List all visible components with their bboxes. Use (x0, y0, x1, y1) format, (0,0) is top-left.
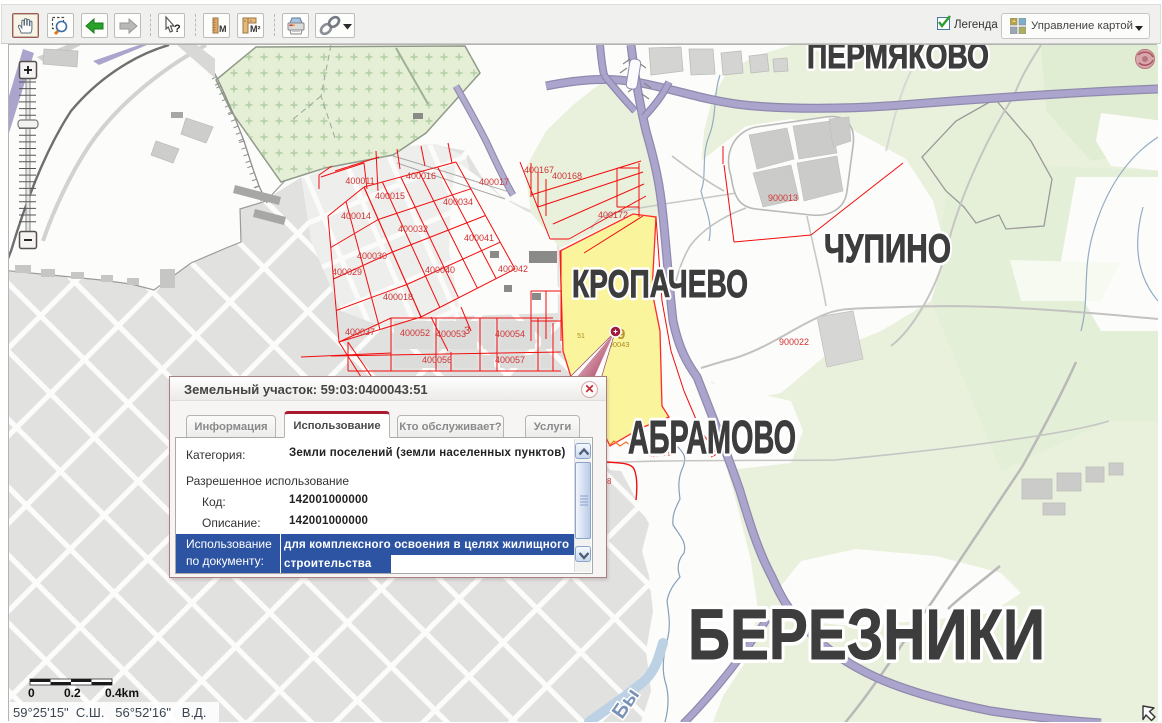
svg-text:400053: 400053 (436, 329, 466, 339)
svg-text:400052: 400052 (400, 328, 430, 338)
svg-text:400032: 400032 (398, 224, 428, 234)
svg-text:БЕРЕЗНИКИ: БЕРЕЗНИКИ (688, 596, 1045, 675)
svg-text:M: M (219, 24, 227, 34)
svg-text:M²: M² (250, 24, 261, 34)
svg-text:400014: 400014 (341, 211, 371, 221)
svg-text:ПЕРМЯКОВО: ПЕРМЯКОВО (807, 45, 989, 76)
svg-text:3: 3 (464, 325, 470, 337)
svg-text:0.4km: 0.4km (105, 686, 139, 700)
svg-text:400030: 400030 (357, 251, 387, 261)
svg-text:400056: 400056 (422, 355, 452, 365)
svg-text:8: 8 (607, 477, 612, 486)
svg-text:400168: 400168 (552, 171, 582, 181)
svg-text:400054: 400054 (495, 329, 525, 339)
svg-text:400041: 400041 (464, 233, 494, 243)
svg-text:400016: 400016 (406, 171, 436, 181)
svg-text:400040: 400040 (425, 265, 455, 275)
svg-text:400017: 400017 (479, 177, 509, 187)
svg-text:400172: 400172 (598, 210, 628, 220)
svg-text:0: 0 (28, 686, 35, 700)
svg-text:400167: 400167 (524, 165, 554, 175)
svg-text:400018: 400018 (383, 292, 413, 302)
svg-text:400042: 400042 (498, 264, 528, 274)
svg-text:59°25'15" С.Ш. 56°52'16": 59°25'15" С.Ш. 56°52'16" В.Д. (13, 705, 206, 720)
svg-text:400037: 400037 (345, 327, 375, 337)
svg-text:?: ? (174, 23, 181, 35)
svg-text:ЧУПИНО: ЧУПИНО (824, 227, 951, 271)
svg-text:400015: 400015 (375, 191, 405, 201)
svg-text:АБРАМОВО: АБРАМОВО (628, 411, 796, 463)
svg-text:400034: 400034 (443, 197, 473, 207)
svg-text:400029: 400029 (332, 267, 362, 277)
svg-text:900013: 900013 (768, 193, 798, 203)
svg-text:900022: 900022 (779, 337, 809, 347)
svg-text:0.2: 0.2 (64, 686, 81, 700)
svg-text:400011: 400011 (345, 176, 374, 186)
svg-text:51: 51 (577, 333, 585, 340)
svg-text:КРОПАЧЕВО: КРОПАЧЕВО (572, 263, 748, 306)
svg-text:400057: 400057 (495, 355, 525, 365)
